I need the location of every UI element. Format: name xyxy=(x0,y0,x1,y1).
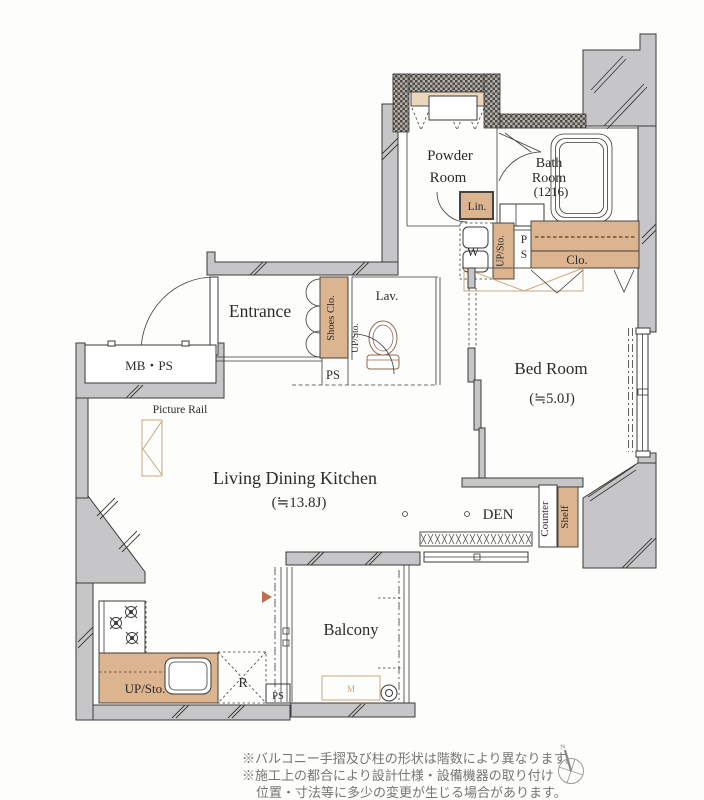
bath-room-label-3: (1216) xyxy=(534,184,569,199)
bedroom-wall-stub-top xyxy=(468,268,475,288)
balcony-sliding-door xyxy=(275,567,292,702)
ps-kitchen-label: PS xyxy=(272,691,284,702)
mbps-label: MB・PS xyxy=(125,358,173,373)
entrance-door-arc xyxy=(141,277,214,352)
checker-bath-band xyxy=(500,114,586,128)
balcony-label: Balcony xyxy=(324,620,380,639)
bath-door-leaf xyxy=(499,133,541,152)
ps-entrance-label: PS xyxy=(326,368,340,382)
bedroom-wall-bottom xyxy=(462,478,583,487)
bath-label-leader xyxy=(505,133,531,152)
pipe-space-p: P xyxy=(521,234,527,246)
entrance-step-lines xyxy=(215,357,322,361)
picture-rail-label: Picture Rail xyxy=(153,404,208,416)
wall-balcony-top xyxy=(286,552,420,565)
drain-cap xyxy=(381,685,397,701)
meter-label: M xyxy=(347,684,355,694)
floor-marker-left xyxy=(403,512,408,517)
bath-room: Bath Room (1216) xyxy=(497,128,638,230)
den-counter-label: Counter xyxy=(539,501,551,537)
wall-ldk-left xyxy=(76,398,88,498)
balcony: Balcony M xyxy=(275,565,409,703)
bedroom: Bed Room (≒5.0J) xyxy=(462,268,650,487)
wall-kitchen-left xyxy=(76,583,93,720)
lav-label: Lav. xyxy=(376,288,399,303)
window-cap-bottom xyxy=(636,451,650,457)
bedroom-wall-seg1 xyxy=(468,348,475,382)
window-cap-top xyxy=(636,328,650,334)
closet-block xyxy=(531,221,639,251)
kitchen: UP/Sto. R PS xyxy=(99,591,290,703)
refrigerator-label: R xyxy=(238,676,248,691)
closet-label: Clo. xyxy=(566,253,587,267)
curtain-dash-lines xyxy=(629,328,633,452)
note-line-3: 位置・寸法等に多少の変更が生じる場合があります。 xyxy=(256,785,567,800)
den-label: DEN xyxy=(483,507,514,523)
entrance-label: Entrance xyxy=(229,301,291,321)
note-line-1: ※バルコニー手摺及び柱の形状は階数により異なります。 xyxy=(242,751,578,766)
pillar-bottom-right xyxy=(583,463,656,568)
pipe-space-s: S xyxy=(521,249,527,261)
mbps-area: MB・PS Picture Rail xyxy=(85,341,216,476)
checker-left-leg xyxy=(393,74,409,132)
beam-marker-diagonals xyxy=(143,421,162,475)
washer-label: W xyxy=(467,244,480,259)
shoes-closet-folding-doors xyxy=(306,279,320,357)
checker-right-leg xyxy=(484,74,500,128)
hanger-bracket-right xyxy=(614,270,634,292)
linen-label: Lin. xyxy=(468,201,487,213)
entrance-door-leaf xyxy=(210,277,218,355)
shoes-closet-label: Shoes Clo. xyxy=(326,295,337,341)
toilet xyxy=(367,321,399,369)
den-window-sill xyxy=(420,532,532,546)
wall-entrance-top xyxy=(207,252,398,275)
mbps-tick-left xyxy=(108,341,115,346)
den-area: Counter Shelf DEN xyxy=(403,485,579,562)
bath-room-label-1: Bath xyxy=(536,156,562,171)
bedroom-size-label: (≒5.0J) xyxy=(529,391,575,407)
wall-balcony-bottom xyxy=(291,703,415,717)
floor-plan-svg: Lin. Powder Room Bath Room (1216) W UP/S… xyxy=(0,0,704,800)
disclaimer-notes: ※バルコニー手摺及び柱の形状は階数により異なります。 ※施工上の都合により設計仕… xyxy=(242,751,578,800)
entry-direction-triangle xyxy=(262,591,272,603)
compass-north-label: N xyxy=(559,742,566,751)
bedroom-wall-seg2 xyxy=(474,380,481,430)
pillar-top-right xyxy=(583,34,656,126)
balcony-railing-right xyxy=(378,565,409,703)
note-line-2: ※施工上の都合により設計仕様・設備機器の取り付け xyxy=(242,768,554,783)
upsto-kitchen-label: UP/Sto. xyxy=(125,681,166,696)
bedroom-doorway-dashed xyxy=(469,288,476,348)
powder-room: Lin. Powder Room xyxy=(407,92,493,226)
sink-outer xyxy=(165,658,211,694)
floor-marker-right xyxy=(465,512,470,517)
stove xyxy=(99,601,145,653)
ldk-size-label: (≒13.8J) xyxy=(272,495,327,511)
mbps-tick-right xyxy=(182,341,189,346)
upsto-lav-label: UP/Sto. xyxy=(351,323,361,353)
floor-plan-page: Lin. Powder Room Bath Room (1216) W UP/S… xyxy=(0,0,704,800)
bedroom-label: Bed Room xyxy=(514,359,587,378)
den-shelf-label: Shelf xyxy=(559,505,571,529)
bedroom-wall-seg3 xyxy=(479,428,485,478)
hall-storage: W UP/Sto. P S Clo. xyxy=(460,221,639,293)
ldk-label: Living Dining Kitchen xyxy=(213,468,377,488)
beam-marker xyxy=(142,420,162,476)
powder-room-label-2: Room xyxy=(430,170,467,186)
powder-room-label-1: Powder xyxy=(427,148,473,164)
ldk: Living Dining Kitchen (≒13.8J) xyxy=(213,468,377,511)
bedroom-window-right xyxy=(629,328,651,457)
hanger-bracket-left xyxy=(531,270,583,293)
wall-right-upper xyxy=(638,126,656,332)
powder-unit-box xyxy=(429,96,477,120)
upsto-hall-label: UP/Sto. xyxy=(496,235,507,266)
